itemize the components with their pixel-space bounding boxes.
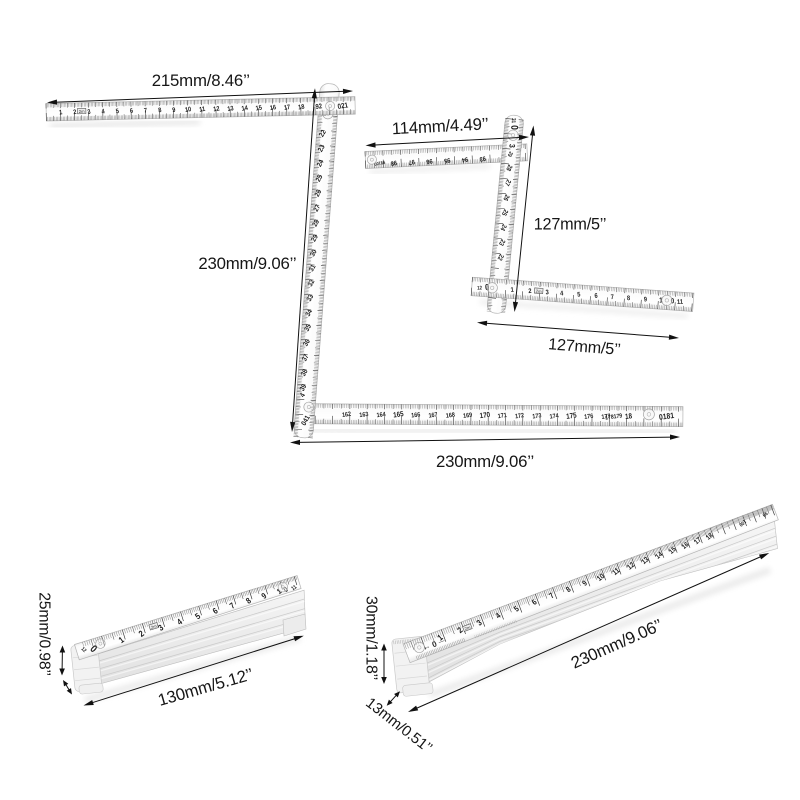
svg-text:173: 173 — [532, 413, 542, 421]
svg-text:30mm/1.18’’: 30mm/1.18’’ — [363, 596, 380, 680]
svg-text:174: 174 — [549, 413, 559, 421]
svg-text:25mm/0.98’’: 25mm/0.98’’ — [36, 592, 53, 676]
svg-text:170: 170 — [479, 411, 491, 420]
svg-text:3: 3 — [507, 144, 517, 148]
svg-text:127mm/5’’: 127mm/5’’ — [534, 216, 607, 234]
svg-text:175: 175 — [566, 412, 578, 421]
svg-text:230mm/9.06’’: 230mm/9.06’’ — [198, 254, 296, 273]
svg-text:163: 163 — [359, 412, 369, 420]
svg-text:215mm/8.46’’: 215mm/8.46’’ — [152, 71, 250, 90]
svg-text:164: 164 — [376, 412, 386, 420]
svg-text:12: 12 — [477, 285, 483, 292]
svg-text:31: 31 — [510, 118, 517, 123]
svg-text:2m: 2m — [79, 109, 85, 114]
svg-text:230mm/9.06’’: 230mm/9.06’’ — [436, 452, 534, 471]
svg-text:166: 166 — [411, 412, 421, 420]
svg-text:11: 11 — [677, 298, 684, 306]
svg-text:176: 176 — [584, 413, 594, 421]
svg-text:167: 167 — [428, 412, 438, 420]
svg-text:165: 165 — [393, 411, 405, 420]
svg-text:169: 169 — [463, 412, 473, 420]
svg-text:172: 172 — [515, 413, 525, 421]
svg-text:2m: 2m — [536, 289, 543, 294]
svg-text:0: 0 — [509, 125, 520, 130]
svg-text:171: 171 — [497, 413, 507, 421]
svg-text:168: 168 — [446, 412, 456, 420]
svg-text:18: 18 — [625, 413, 633, 421]
svg-text:162: 162 — [342, 411, 352, 419]
svg-text:0181: 0181 — [658, 410, 674, 422]
